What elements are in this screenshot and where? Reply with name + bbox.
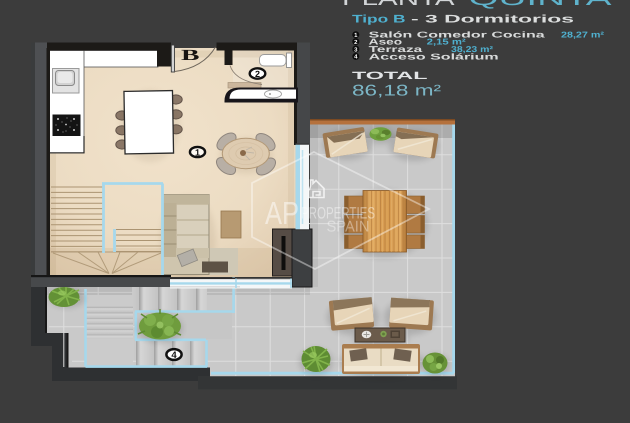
svg-text:PLANTA: PLANTA <box>342 0 455 10</box>
svg-text:86,18 m²: 86,18 m² <box>352 82 441 99</box>
svg-text:1: 1 <box>195 147 200 157</box>
svg-text:Tipo B: Tipo B <box>352 14 406 26</box>
svg-text:Acceso Solárium: Acceso Solárium <box>369 52 500 62</box>
svg-text:SPAIN: SPAIN <box>327 219 370 236</box>
svg-text:QUINTA: QUINTA <box>469 0 613 10</box>
svg-text:28,27 m²: 28,27 m² <box>561 29 604 39</box>
svg-text:2: 2 <box>255 69 260 79</box>
svg-text:- 3 Dormitorios: - 3 Dormitorios <box>411 14 574 26</box>
svg-text:4: 4 <box>171 350 177 361</box>
svg-text:AP: AP <box>265 195 299 231</box>
svg-text:B: B <box>181 47 200 64</box>
svg-text:TOTAL: TOTAL <box>352 70 429 82</box>
